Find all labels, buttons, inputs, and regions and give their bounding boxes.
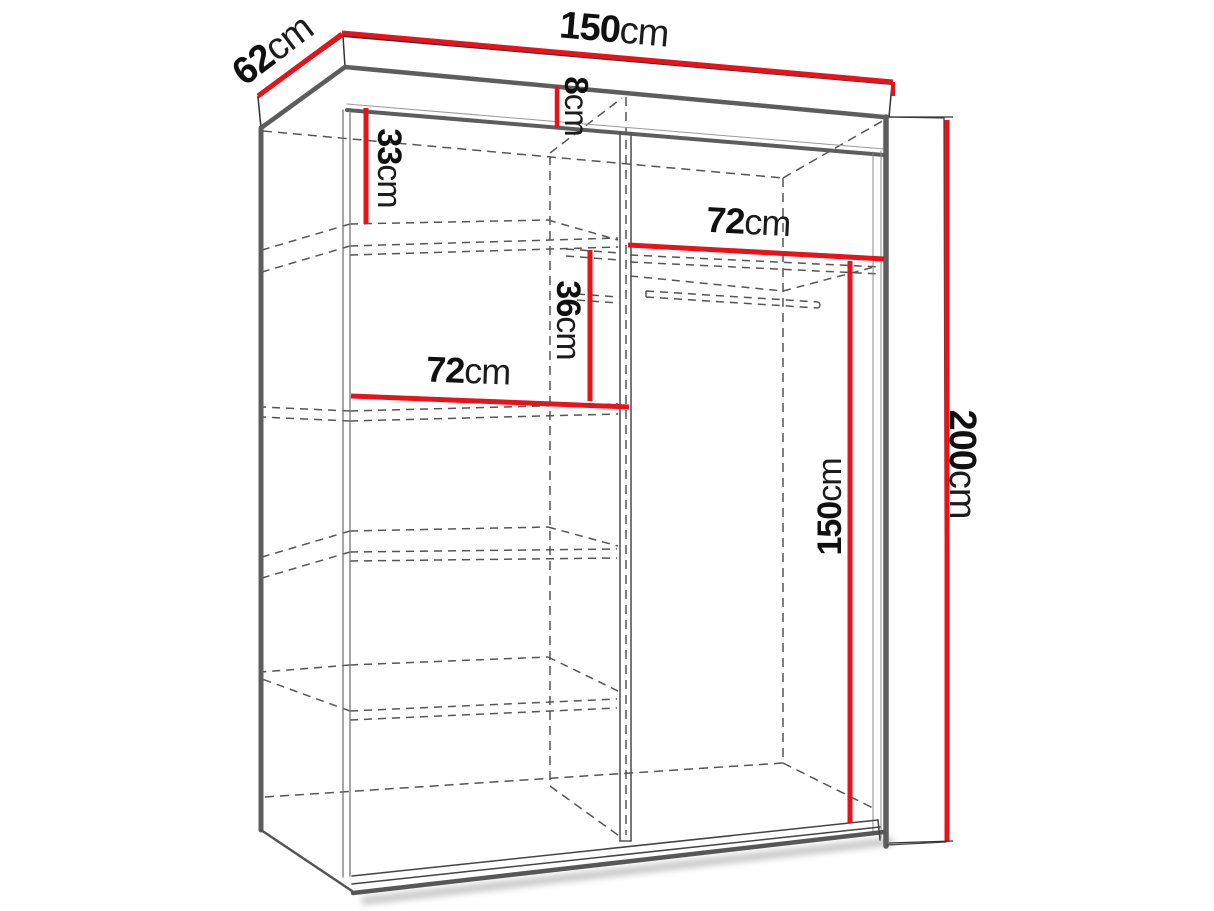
base-front-edge	[353, 832, 884, 893]
rail-shelf-front-2	[630, 262, 881, 274]
back-bottom-right-diagonal	[783, 763, 875, 809]
shelf-3	[262, 527, 618, 578]
left-corner-cap	[258, 97, 261, 128]
dimension-width-label: 150cm	[558, 4, 670, 55]
right-side-panel	[887, 117, 946, 845]
base-right-foot	[878, 820, 880, 840]
hanging-rail	[646, 291, 820, 308]
wardrobe-dimension-diagram: 62cm 150cm 8cm 33cm 72cm 36cm 72cm 150cm…	[0, 0, 1214, 911]
rail-shelf-back	[630, 276, 783, 291]
dimension-depth-label: 62cm	[225, 7, 321, 94]
dimension-left-shelf-width-label: 72cm	[426, 349, 511, 393]
dimension-right-section-width-line	[628, 245, 884, 259]
shelf-1	[262, 220, 618, 272]
dimension-total-height-label: 200cm	[941, 409, 983, 518]
dimension-top-shelf-gap-label: 33cm	[370, 128, 408, 207]
divider-bottom-diagonal	[550, 786, 622, 838]
diagram-canvas: 62cm 150cm 8cm 33cm 72cm 36cm 72cm 150cm…	[0, 0, 1214, 911]
dimension-labels: 62cm 150cm 8cm 33cm 72cm 36cm 72cm 150cm…	[225, 4, 983, 555]
hidden-edges	[263, 97, 886, 838]
dimension-top-panel-label: 8cm	[558, 76, 595, 135]
dimension-middle-gap-label: 36cm	[549, 280, 587, 359]
dimension-right-section-width-label: 72cm	[705, 199, 791, 244]
shelf-4	[262, 657, 618, 720]
rail-shelf-right-diagonal	[783, 266, 878, 291]
top-left-cap	[343, 36, 345, 67]
fascia-bottom-edge	[347, 110, 884, 155]
dimension-left-shelf-width-line	[351, 396, 629, 407]
floor-shadow	[362, 841, 893, 901]
fascia-left-edge	[261, 67, 345, 128]
base-left-diagonal	[261, 830, 352, 891]
dimension-lines	[258, 33, 947, 841]
dimension-hanging-height-label: 150cm	[811, 458, 849, 555]
